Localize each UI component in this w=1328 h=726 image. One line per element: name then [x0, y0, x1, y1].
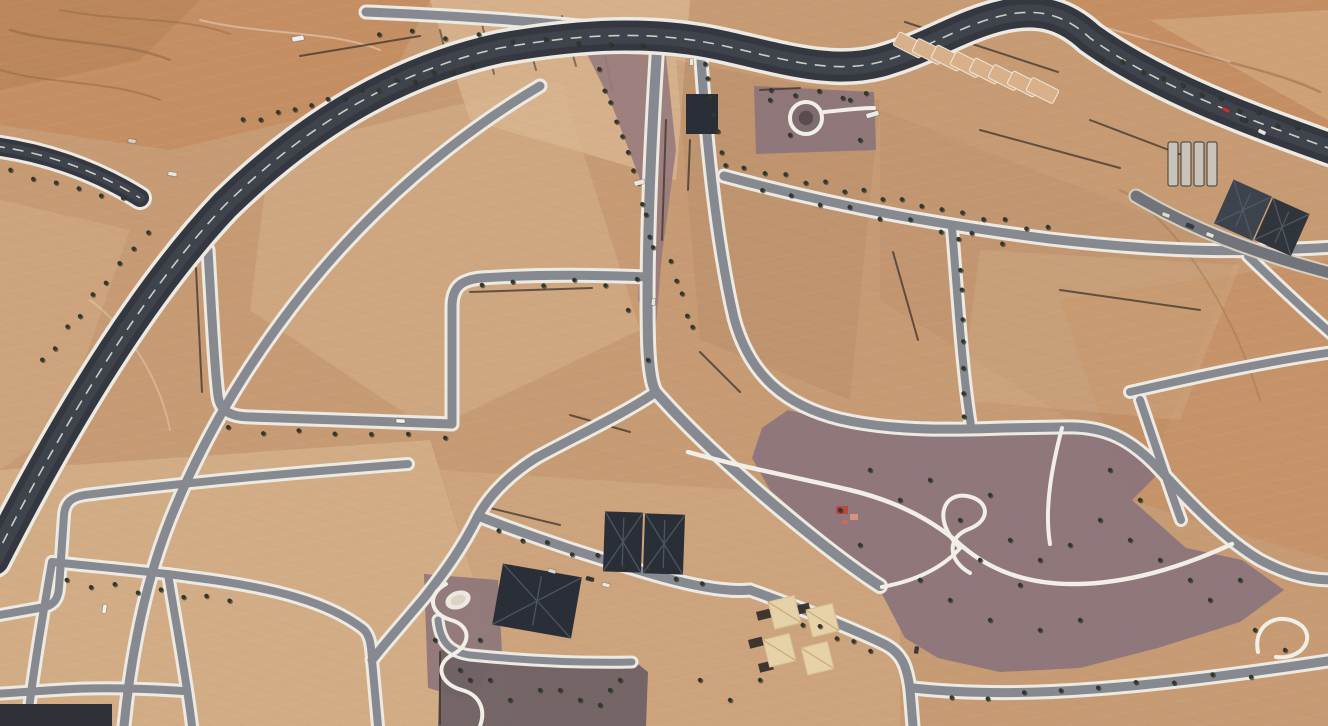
satellite-screenshot [0, 0, 1328, 726]
film-grain-overlay [0, 0, 1328, 726]
aerial-satellite-image [0, 0, 1328, 726]
